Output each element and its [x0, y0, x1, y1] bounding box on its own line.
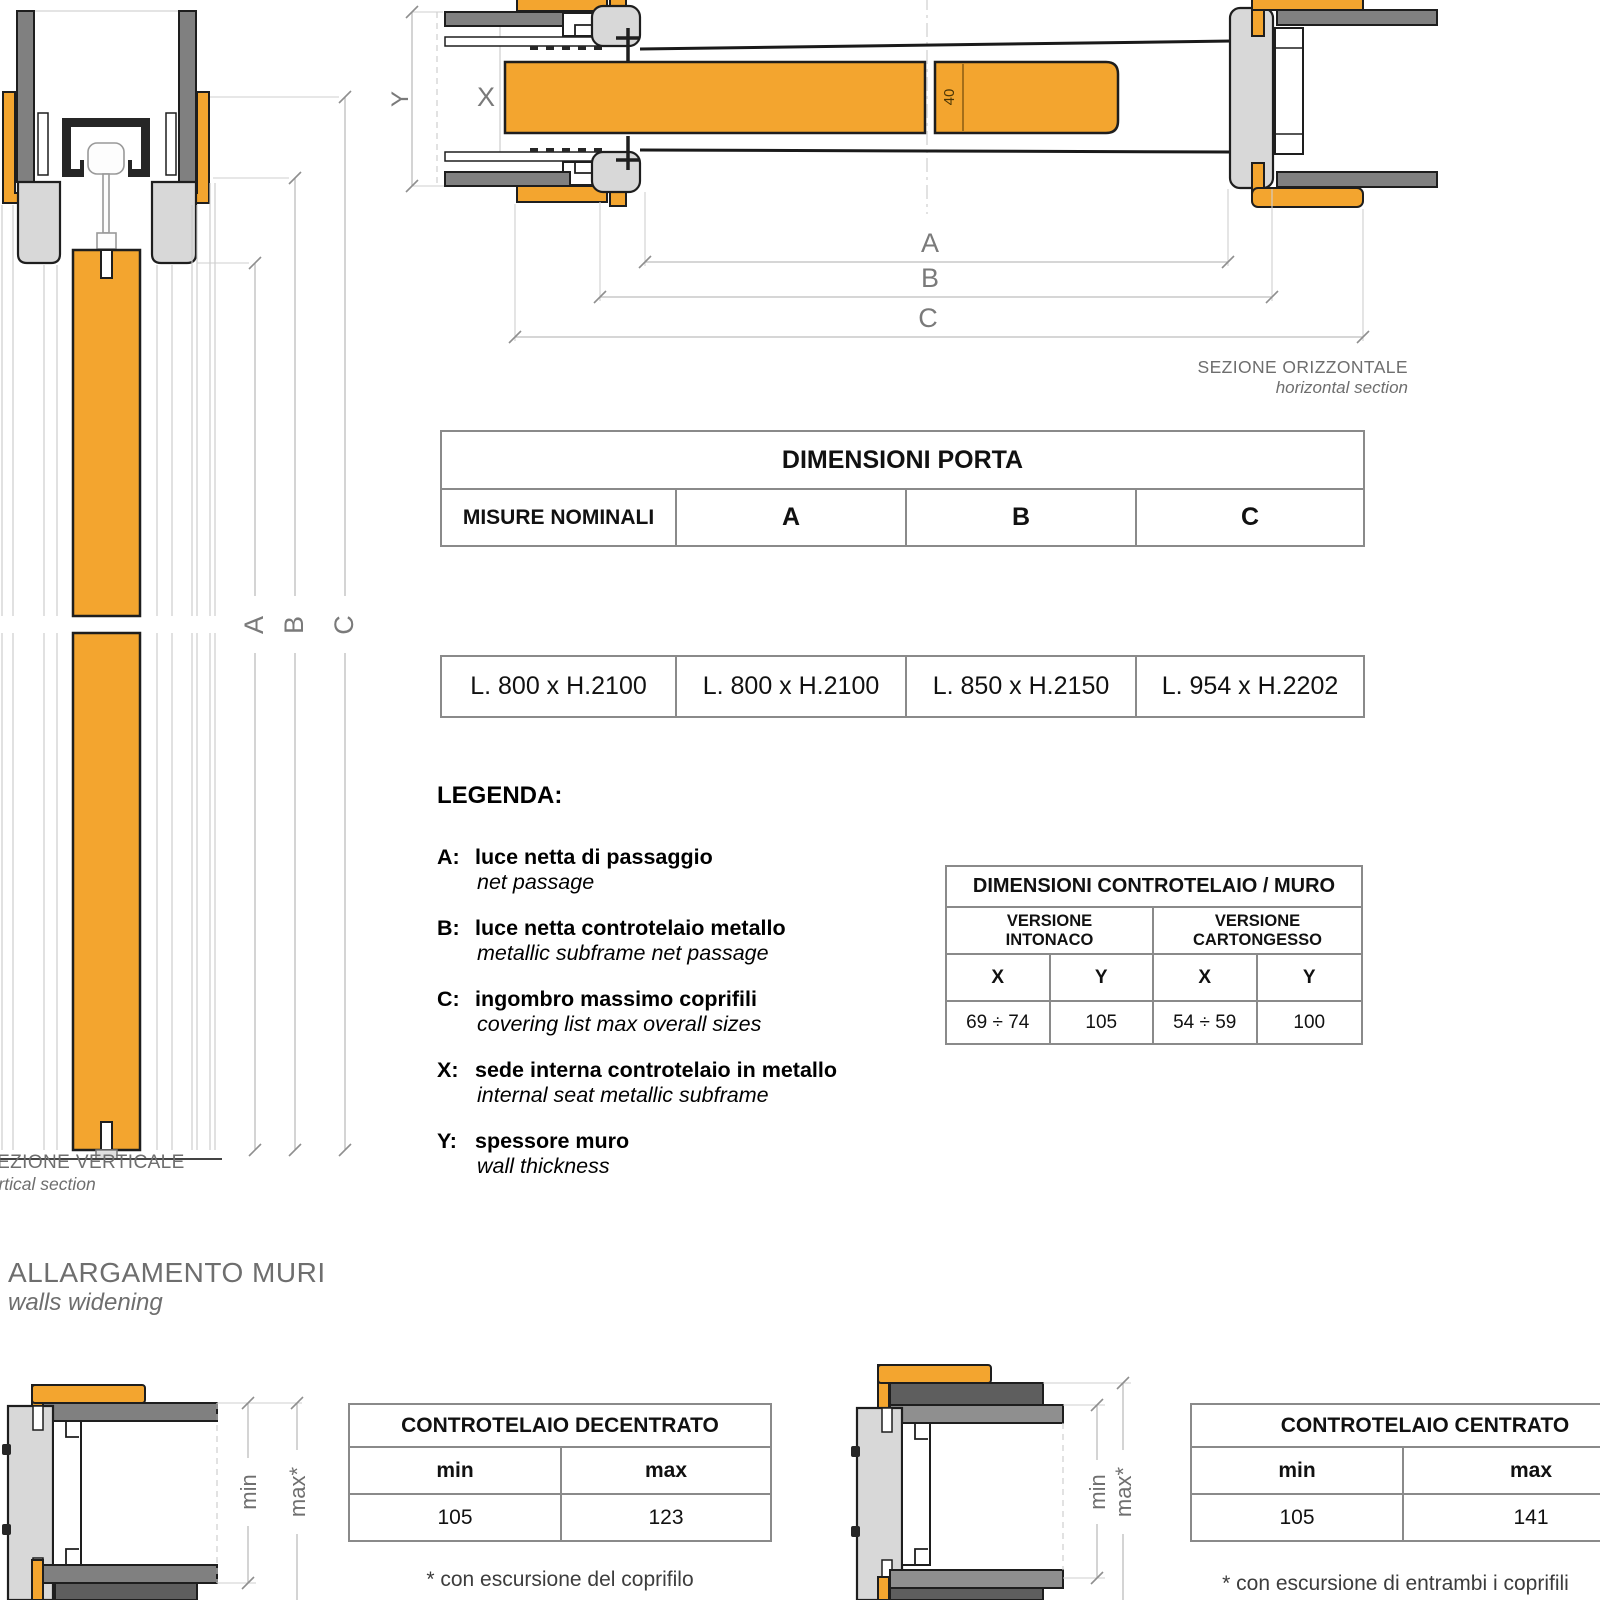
legend-key: Y: — [437, 1129, 475, 1154]
centrato-max-header: max — [1404, 1448, 1600, 1493]
header-profile-left — [18, 182, 60, 263]
legend-key: B: — [437, 916, 475, 941]
pocket-profile-top — [445, 0, 640, 62]
legend-title: LEGENDA: — [437, 782, 917, 810]
version-cartongesso-header: VERSIONE CARTONGESSO — [1154, 908, 1361, 953]
min-label-centrato: min — [1085, 1474, 1110, 1509]
version-intonaco-header: VERSIONE INTONACO — [947, 908, 1154, 953]
cartongesso-y-header: Y — [1258, 955, 1362, 1000]
legend-text-it: luce netta di passaggio — [475, 845, 713, 870]
legend-text-en: metallic subframe net passage — [437, 941, 917, 966]
decentrato-table: CONTROTELAIO DECENTRATO min max 105 123 — [348, 1403, 772, 1542]
horizontal-section-title: SEZIONE ORIZZONTALE — [1100, 357, 1408, 378]
wall-plate-mid-bottom — [890, 1570, 1063, 1588]
vertical-section-caption: SEZIONE VERTICALE vertical section — [0, 1152, 284, 1195]
legend-item-b: B:luce netta controtelaio metallo metall… — [437, 916, 917, 966]
wall-plate-bottom — [43, 1565, 217, 1583]
subframe-table-title: DIMENSIONI CONTROTELAIO / MURO — [947, 867, 1361, 908]
dim-label-a-vertical: A — [239, 616, 269, 634]
porta-value-a: L. 800 x H.2100 — [677, 657, 907, 716]
porta-value-c: L. 954 x H.2202 — [1137, 657, 1363, 716]
decentrato-min-header: min — [350, 1448, 562, 1493]
legend-key: X: — [437, 1058, 475, 1083]
centrato-min-value: 105 — [1192, 1495, 1404, 1540]
legend-text-it: luce netta controtelaio metallo — [475, 916, 786, 941]
col-header-c: C — [1137, 490, 1363, 545]
decentrato-min-value: 105 — [350, 1495, 562, 1540]
legend-key: A: — [437, 845, 475, 870]
walls-widening-title: ALLARGAMENTO MURI — [8, 1256, 508, 1289]
centrato-min-header: min — [1192, 1448, 1404, 1493]
wall-stud-right — [179, 11, 196, 182]
pocket-profile-bottom — [445, 136, 640, 206]
dim-label-b: B — [921, 263, 939, 293]
intonaco-y-value: 105 — [1051, 1002, 1155, 1043]
centrato-footnote: * con escursione di entrambi i coprifili — [1188, 1572, 1600, 1596]
break-line — [0, 616, 232, 633]
drawing-sheet: A B C Y X — [0, 0, 1600, 1600]
intonaco-y-header: Y — [1051, 955, 1155, 1000]
porta-table-header: DIMENSIONI PORTA MISURE NOMINALI A B C — [440, 430, 1365, 547]
top-seal-line — [640, 41, 1232, 49]
intonaco-x-header: X — [947, 955, 1051, 1000]
decentrato-jamb-drawing: min max* — [2, 1385, 310, 1600]
legend-item-y: Y:spessore muro wall thickness — [437, 1129, 917, 1179]
vertical-section-subtitle: vertical section — [0, 1174, 284, 1195]
horizontal-dimensions: A B C — [509, 189, 1369, 343]
legend-text-it: sede interna controtelaio in metallo — [475, 1058, 837, 1083]
walls-widening-caption: ALLARGAMENTO MURI walls widening — [8, 1256, 508, 1317]
dim-label-x: X — [477, 82, 495, 112]
subframe-post — [902, 1423, 930, 1565]
roller-trolley — [88, 143, 124, 174]
door-slab-left — [505, 62, 925, 133]
vertical-section-drawing: A B C — [0, 11, 359, 1159]
legend: LEGENDA: A:luce netta di passaggio net p… — [437, 782, 917, 1200]
dim-label-c-vertical: C — [329, 615, 359, 635]
wall-stud-left — [17, 11, 34, 182]
walls-widening-subtitle: walls widening — [8, 1289, 508, 1317]
header-profile-right — [152, 182, 196, 263]
legend-item-x: X:sede interna controtelaio in metallo i… — [437, 1058, 917, 1108]
hanger-rod — [103, 174, 109, 233]
subframe-wall-table: DIMENSIONI CONTROTELAIO / MURO VERSIONE … — [945, 865, 1363, 1045]
legend-text-it: ingombro massimo coprifili — [475, 987, 757, 1012]
coprifilo-top — [32, 1385, 145, 1403]
jamb-profile-right — [1230, 0, 1437, 207]
centrato-jamb-drawing: min max* — [851, 1365, 1136, 1600]
horizontal-section-caption: SEZIONE ORIZZONTALE horizontal section — [1100, 357, 1408, 398]
min-label-decentrato: min — [236, 1474, 261, 1509]
door-panel-lower — [73, 633, 140, 1150]
dim-label-a: A — [921, 228, 939, 258]
dim-label-y: Y — [387, 91, 414, 107]
horizontal-section-drawing: Y X — [387, 0, 1437, 343]
col-header-misure-nominali: MISURE NOMINALI — [442, 490, 677, 545]
bottom-seal-line — [640, 150, 1232, 152]
cartongesso-y-value: 100 — [1258, 1002, 1362, 1043]
col-header-b: B — [907, 490, 1137, 545]
porta-value-b: L. 850 x H.2150 — [907, 657, 1137, 716]
cartongesso-x-header: X — [1154, 955, 1258, 1000]
decentrato-table-title: CONTROTELAIO DECENTRATO — [350, 1405, 770, 1448]
dim-label-b-vertical: B — [279, 616, 309, 634]
wall-plate-top — [43, 1403, 217, 1421]
legend-text-en: wall thickness — [437, 1154, 917, 1179]
porta-value-nominal: L. 800 x H.2100 — [442, 657, 677, 716]
porta-table-title: DIMENSIONI PORTA — [442, 432, 1363, 490]
decentrato-max-value: 123 — [562, 1495, 770, 1540]
door-thickness-label: 40 — [941, 89, 958, 106]
decentrato-footnote: * con escursione del coprifilo — [348, 1568, 772, 1592]
centrato-table: CONTROTELAIO CENTRATO min max 105 141 — [1190, 1403, 1600, 1542]
subframe-post — [53, 1421, 81, 1565]
decentrato-max-header: max — [562, 1448, 770, 1493]
legend-text-en: covering list max overall sizes — [437, 1012, 917, 1037]
coprifilo-top — [878, 1365, 991, 1383]
max-label-decentrato: max* — [285, 1467, 310, 1518]
legend-text-en: internal seat metallic subframe — [437, 1083, 917, 1108]
height-adjuster — [97, 233, 116, 249]
legend-item-c: C:ingombro massimo coprifili covering li… — [437, 987, 917, 1037]
legend-key: C: — [437, 987, 475, 1012]
porta-table-values: L. 800 x H.2100 L. 800 x H.2100 L. 850 x… — [440, 655, 1365, 718]
dim-label-c: C — [918, 303, 938, 333]
legend-text-en: net passage — [437, 870, 917, 895]
legend-text-it: spessore muro — [475, 1129, 629, 1154]
vertical-section-title: SEZIONE VERTICALE — [0, 1152, 284, 1174]
intonaco-x-value: 69 ÷ 74 — [947, 1002, 1051, 1043]
door-panel-upper — [73, 250, 140, 616]
centrato-table-title: CONTROTELAIO CENTRATO — [1192, 1405, 1600, 1448]
horizontal-section-subtitle: horizontal section — [1100, 378, 1408, 398]
max-label-centrato: max* — [1111, 1467, 1136, 1518]
col-header-a: A — [677, 490, 907, 545]
legend-item-a: A:luce netta di passaggio net passage — [437, 845, 917, 895]
cartongesso-x-value: 54 ÷ 59 — [1154, 1002, 1258, 1043]
centrato-max-value: 141 — [1404, 1495, 1600, 1540]
wall-plate-mid-top — [890, 1405, 1063, 1423]
wall-plate-dark-top — [890, 1383, 1043, 1405]
